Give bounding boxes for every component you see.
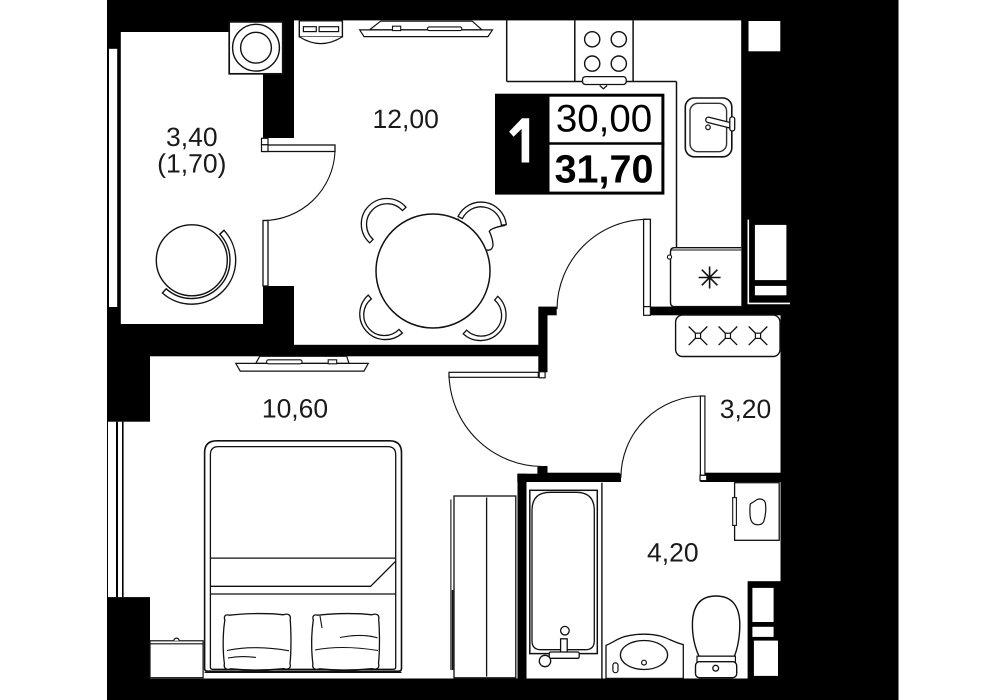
svg-text:(1,70): (1,70) bbox=[157, 149, 226, 179]
svg-text:30,00: 30,00 bbox=[556, 97, 652, 140]
svg-text:3,20: 3,20 bbox=[720, 394, 772, 424]
svg-text:10,60: 10,60 bbox=[262, 394, 328, 424]
svg-text:31,70: 31,70 bbox=[555, 148, 654, 192]
svg-text:3,40: 3,40 bbox=[166, 122, 218, 152]
svg-text:4,20: 4,20 bbox=[647, 538, 699, 568]
svg-text:12,00: 12,00 bbox=[373, 104, 439, 134]
